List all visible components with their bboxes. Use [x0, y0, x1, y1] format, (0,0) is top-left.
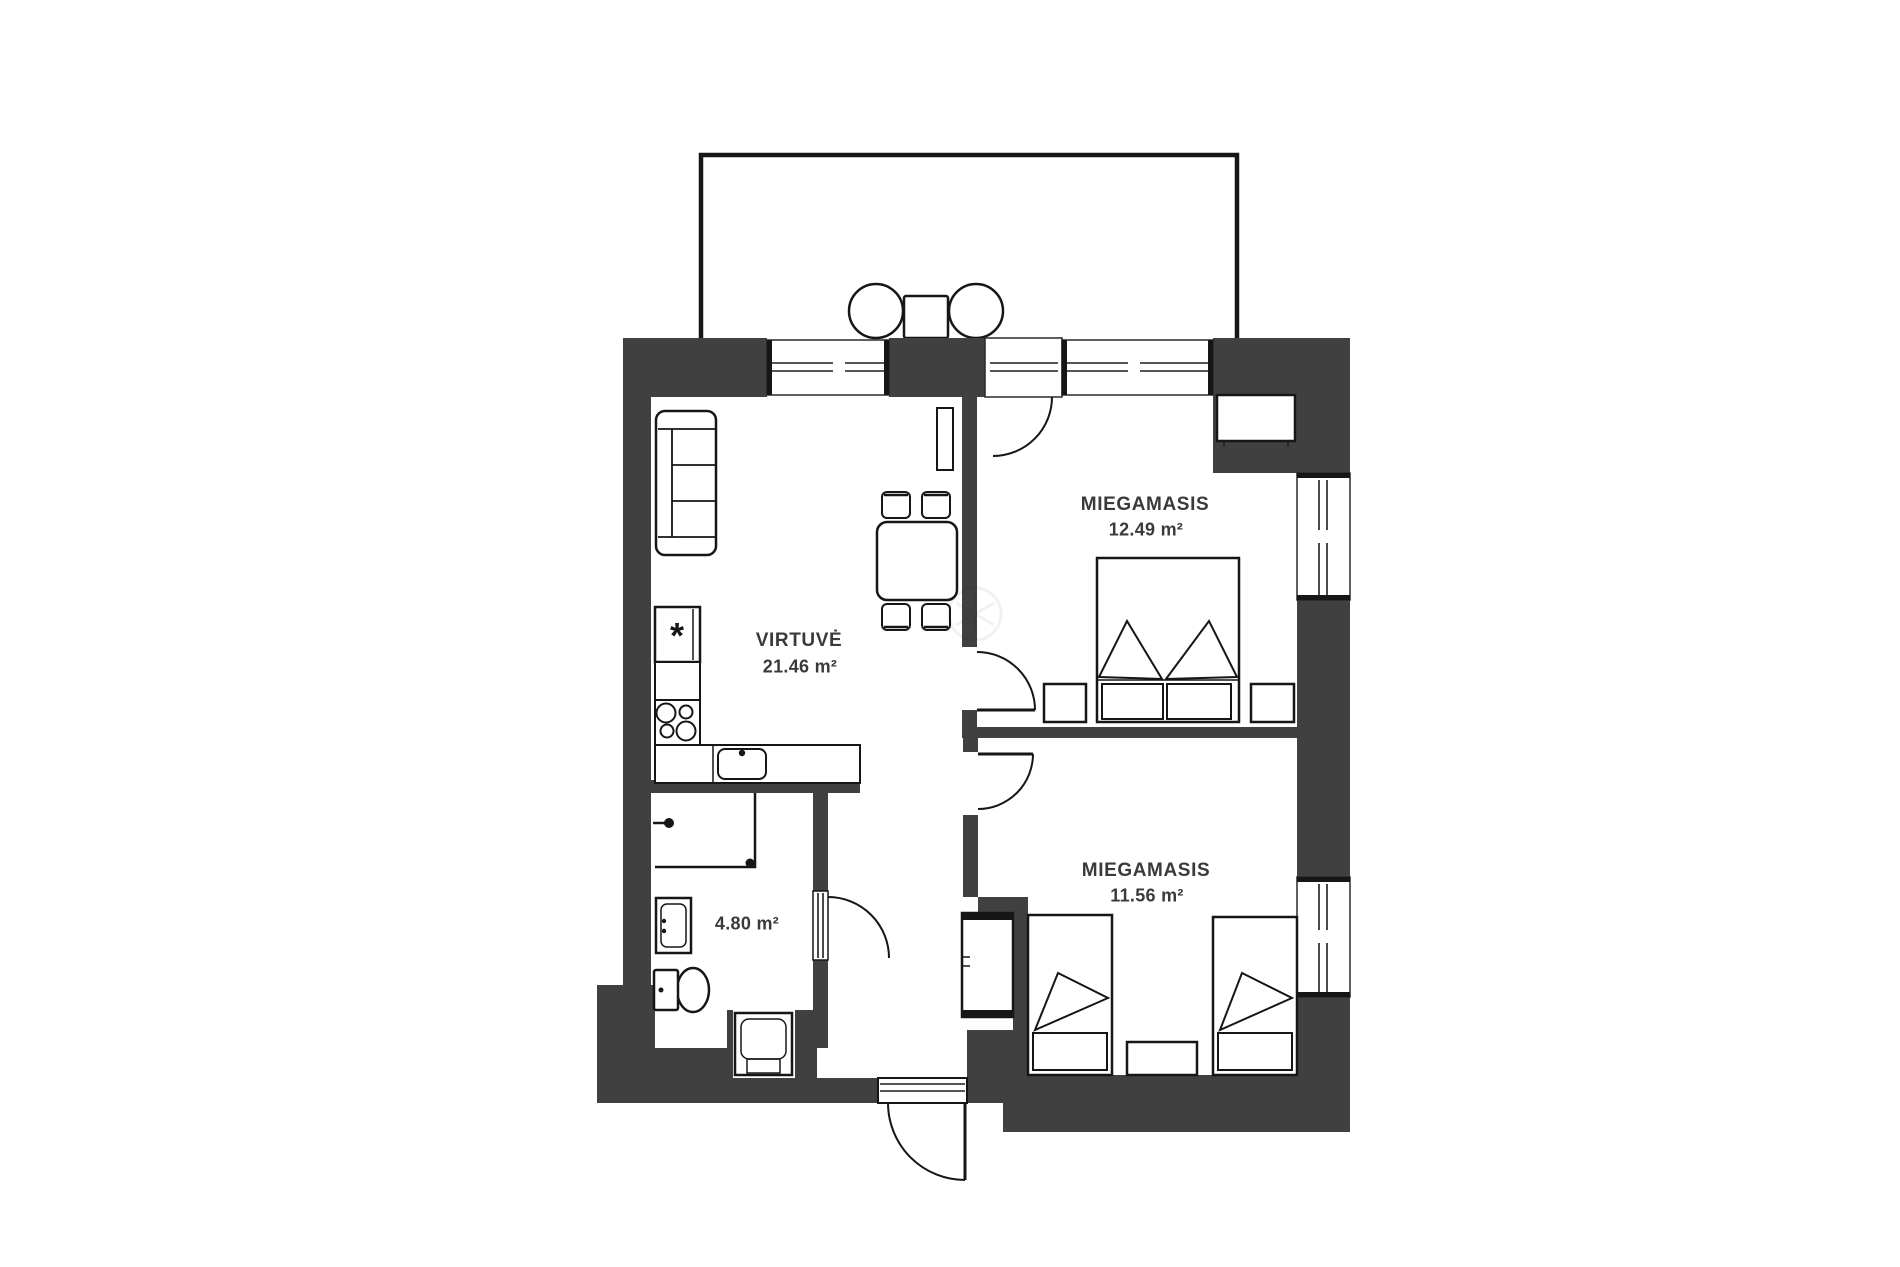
- bedroom2-wall-jog: [978, 897, 1028, 913]
- stove: [655, 700, 700, 748]
- hall-wardrobe: [962, 913, 1013, 1017]
- nightstand: [1127, 1042, 1197, 1075]
- sink-faucet: [739, 750, 745, 756]
- shower-faucet: [653, 818, 674, 828]
- left-wall-upper: [623, 397, 651, 985]
- kitchen-counter-sink: [655, 745, 860, 783]
- bedroom2-area: 11.56 m²: [1110, 886, 1183, 907]
- bedroom2-east-window: [1297, 877, 1350, 997]
- double-bed: [1097, 558, 1239, 722]
- balcony-table: [904, 296, 948, 338]
- balcony-chair: [949, 284, 1003, 338]
- top-wall-left: [623, 338, 767, 397]
- bedroom1-east-window: [1297, 473, 1350, 600]
- east-wall-mid: [1297, 600, 1350, 877]
- balcony-chair: [849, 284, 903, 338]
- hall-bedroom2-stub: [963, 738, 978, 752]
- bedroom1-closet: [1217, 395, 1295, 447]
- washbasin: [656, 898, 691, 953]
- kitchen-furniture: [655, 408, 957, 783]
- dining-set: [877, 492, 957, 630]
- watermark: [949, 588, 1001, 640]
- bottom-wall-bathroom: [597, 1048, 733, 1103]
- boiler-asterisk-icon: *: [670, 615, 684, 656]
- nightstand: [1044, 684, 1086, 722]
- bathroom-area: 4.80 m²: [715, 914, 779, 935]
- balcony: [701, 155, 1237, 338]
- washing-machine-niche: [733, 1010, 795, 1078]
- kitchen-area: 21.46 m²: [763, 657, 837, 678]
- bathroom-wall-upper: [813, 793, 828, 893]
- bottom-wall-hall: [817, 1078, 878, 1103]
- washing-machine: [735, 1013, 792, 1075]
- bedroom1-area: 12.49 m²: [1109, 520, 1183, 541]
- sofa: [656, 411, 716, 555]
- balcony-door: [985, 338, 1062, 456]
- bathroom-door: [813, 891, 889, 960]
- kitchen-counter-upper: [655, 662, 700, 700]
- shower: [655, 793, 755, 868]
- kitchen-label: VIRTUVĖ: [756, 630, 843, 652]
- single-bed-right: [1213, 917, 1297, 1075]
- hall-bedroom2-wall: [963, 815, 978, 897]
- bedroom1-door: [977, 652, 1035, 710]
- bathroom-fixtures: [653, 793, 755, 1012]
- radiator: [937, 408, 953, 470]
- toilet: [654, 968, 709, 1012]
- top-wall-pier: [889, 338, 985, 397]
- floor-plan: * VIRTUVĖ 21.46 m² MIEGAMASIS 12.49 m² M…: [0, 0, 1900, 1267]
- bedroom1-label: MIEGAMASIS: [1081, 494, 1209, 516]
- nightstand: [1251, 684, 1294, 722]
- bedroom1-window: [1062, 340, 1213, 395]
- entrance-door: [878, 1078, 967, 1180]
- bedroom2-furniture: [1028, 915, 1297, 1075]
- bedroom2-west-wall: [1013, 913, 1028, 1030]
- bedroom2-door: [978, 754, 1033, 809]
- floor-plan-drawing: *: [0, 0, 1900, 1267]
- single-bed-left: [1028, 915, 1112, 1075]
- east-wall-bottom: [1297, 997, 1350, 1132]
- kitchen-window: [767, 340, 889, 395]
- bathroom-wall-lower: [813, 958, 828, 1048]
- dining-table: [877, 522, 957, 600]
- bedroom2-label: MIEGAMASIS: [1082, 860, 1210, 882]
- bedrooms-divider-wall: [962, 727, 1297, 738]
